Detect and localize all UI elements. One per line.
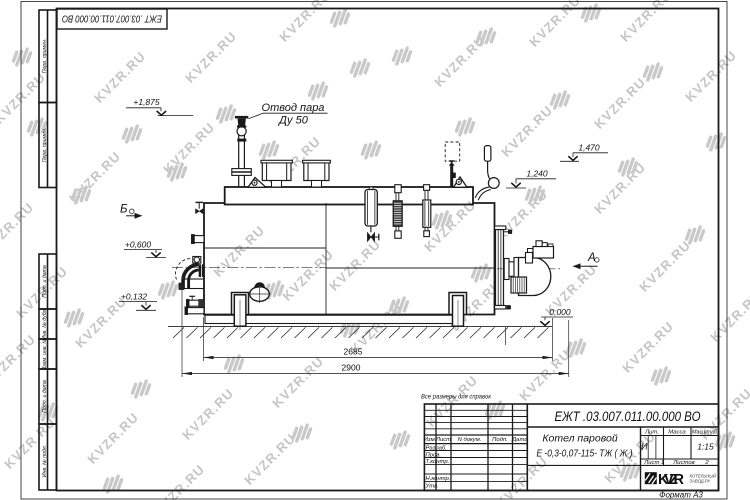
svg-text:Инв. № дубл.: Инв. № дубл.	[42, 308, 48, 340]
svg-text:Формат А3: Формат А3	[659, 491, 703, 500]
svg-text:Н.контр.: Н.контр.	[426, 476, 451, 482]
svg-text:Листов: Листов	[672, 460, 694, 466]
svg-text:1: 1	[661, 460, 664, 466]
svg-text:+0,600: +0,600	[125, 240, 152, 250]
svg-text:Утв.: Утв.	[425, 484, 439, 490]
svg-text:Т.контр.: Т.контр.	[426, 459, 450, 465]
svg-text:+1,875: +1,875	[133, 97, 160, 107]
svg-text:Перв. примен.: Перв. примен.	[42, 39, 48, 73]
svg-text:Подп.: Подп.	[492, 437, 508, 443]
svg-text:А: А	[587, 252, 596, 264]
svg-text:ЗАВОД.РУ: ЗАВОД.РУ	[690, 479, 712, 484]
svg-text:Инв. № подл.: Инв. № подл.	[42, 445, 48, 477]
svg-text:Изм.: Изм.	[424, 437, 437, 443]
svg-text:ЕЖТ .03.007.011.00.000 ВО: ЕЖТ .03.007.011.00.000 ВО	[555, 409, 701, 424]
svg-text:KVZR: KVZR	[658, 472, 685, 488]
svg-text:Ду 50: Ду 50	[277, 115, 309, 127]
svg-text:Подп. и дата: Подп. и дата	[42, 380, 48, 413]
svg-text:0,000: 0,000	[549, 307, 571, 317]
svg-text:Отвод пара: Отвод пара	[262, 102, 325, 114]
svg-text:Е -0,3-0,07-115- ТЖ ( Ж ): Е -0,3-0,07-115- ТЖ ( Ж )	[537, 449, 633, 460]
svg-text:Перв. примен.: Перв. примен.	[42, 128, 48, 162]
svg-text:Дата: Дата	[511, 437, 528, 443]
svg-text:N докум.: N докум.	[458, 437, 482, 443]
svg-text:+0,132: +0,132	[121, 292, 148, 302]
svg-text:Лист: Лист	[435, 437, 451, 443]
svg-text:Б: Б	[120, 204, 128, 216]
svg-text:ЕЖТ .03.007.011.00.000 ВО: ЕЖТ .03.007.011.00.000 ВО	[62, 12, 162, 24]
svg-text:Котел паровой: Котел паровой	[542, 433, 617, 445]
svg-text:2685: 2685	[344, 347, 363, 357]
svg-text:Масштаб: Масштаб	[692, 429, 718, 435]
svg-text:Все размеры для справок: Все размеры для справок	[421, 393, 492, 401]
svg-text:Разраб.: Разраб.	[426, 445, 447, 451]
svg-text:Лит.: Лит.	[644, 429, 659, 435]
svg-text:Взам. инв. №: Взам. инв. №	[42, 338, 48, 370]
svg-text:1,240: 1,240	[526, 169, 548, 179]
svg-text:1,470: 1,470	[578, 143, 600, 153]
svg-text:Подп. и дата: Подп. и дата	[42, 265, 48, 298]
svg-text:2: 2	[704, 460, 709, 466]
svg-text:И: И	[641, 442, 648, 452]
svg-text:2900: 2900	[342, 363, 361, 373]
svg-text:1:15: 1:15	[697, 442, 714, 452]
svg-text:Масса: Масса	[668, 429, 686, 435]
svg-text:Лист: Лист	[643, 460, 659, 466]
svg-text:Пров.: Пров.	[426, 452, 442, 458]
